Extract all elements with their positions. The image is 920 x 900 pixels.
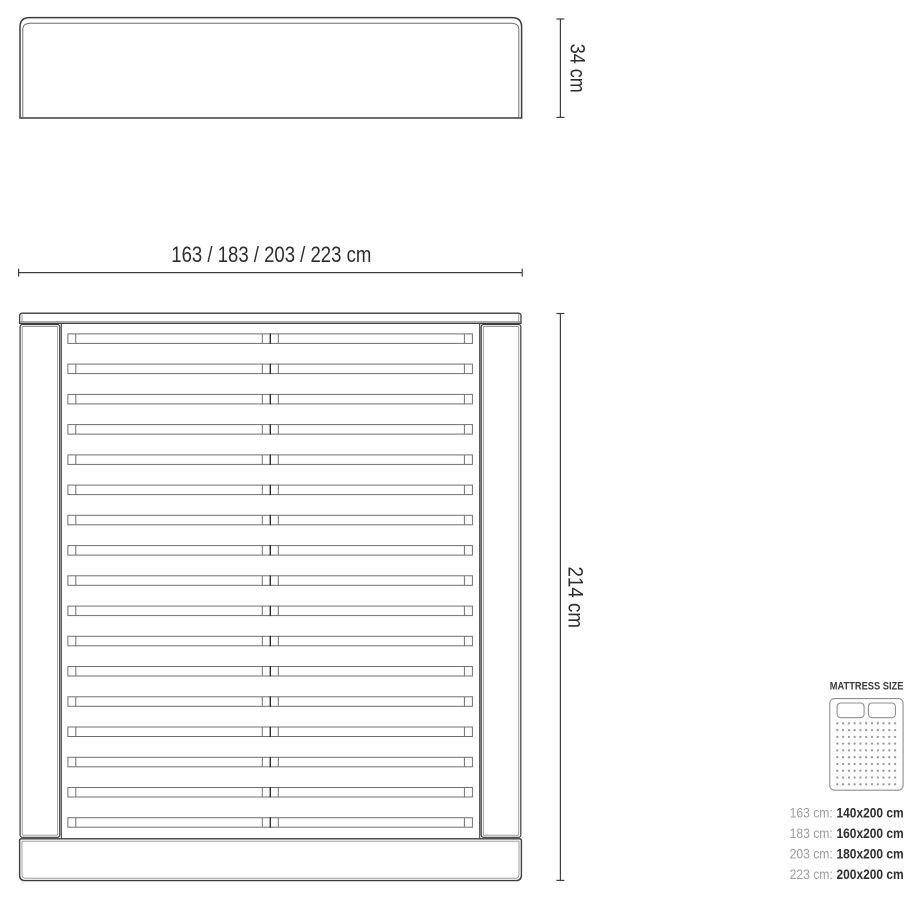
svg-text:163 cm:: 163 cm: bbox=[790, 806, 833, 821]
svg-text:MATTRESS SIZE: MATTRESS SIZE bbox=[830, 680, 904, 692]
svg-text:183 cm:: 183 cm: bbox=[790, 826, 833, 841]
svg-text:140x200 cm: 140x200 cm bbox=[837, 806, 904, 821]
svg-text:160x200 cm: 160x200 cm bbox=[837, 826, 904, 841]
svg-text:223 cm:: 223 cm: bbox=[790, 867, 833, 882]
svg-text:214 cm: 214 cm bbox=[564, 567, 588, 629]
svg-text:200x200 cm: 200x200 cm bbox=[837, 867, 904, 882]
svg-text:34 cm: 34 cm bbox=[566, 44, 590, 93]
svg-text:163 / 183 / 203 / 223 cm: 163 / 183 / 203 / 223 cm bbox=[171, 242, 371, 267]
svg-text:203 cm:: 203 cm: bbox=[790, 846, 833, 861]
svg-text:180x200 cm: 180x200 cm bbox=[837, 846, 904, 861]
